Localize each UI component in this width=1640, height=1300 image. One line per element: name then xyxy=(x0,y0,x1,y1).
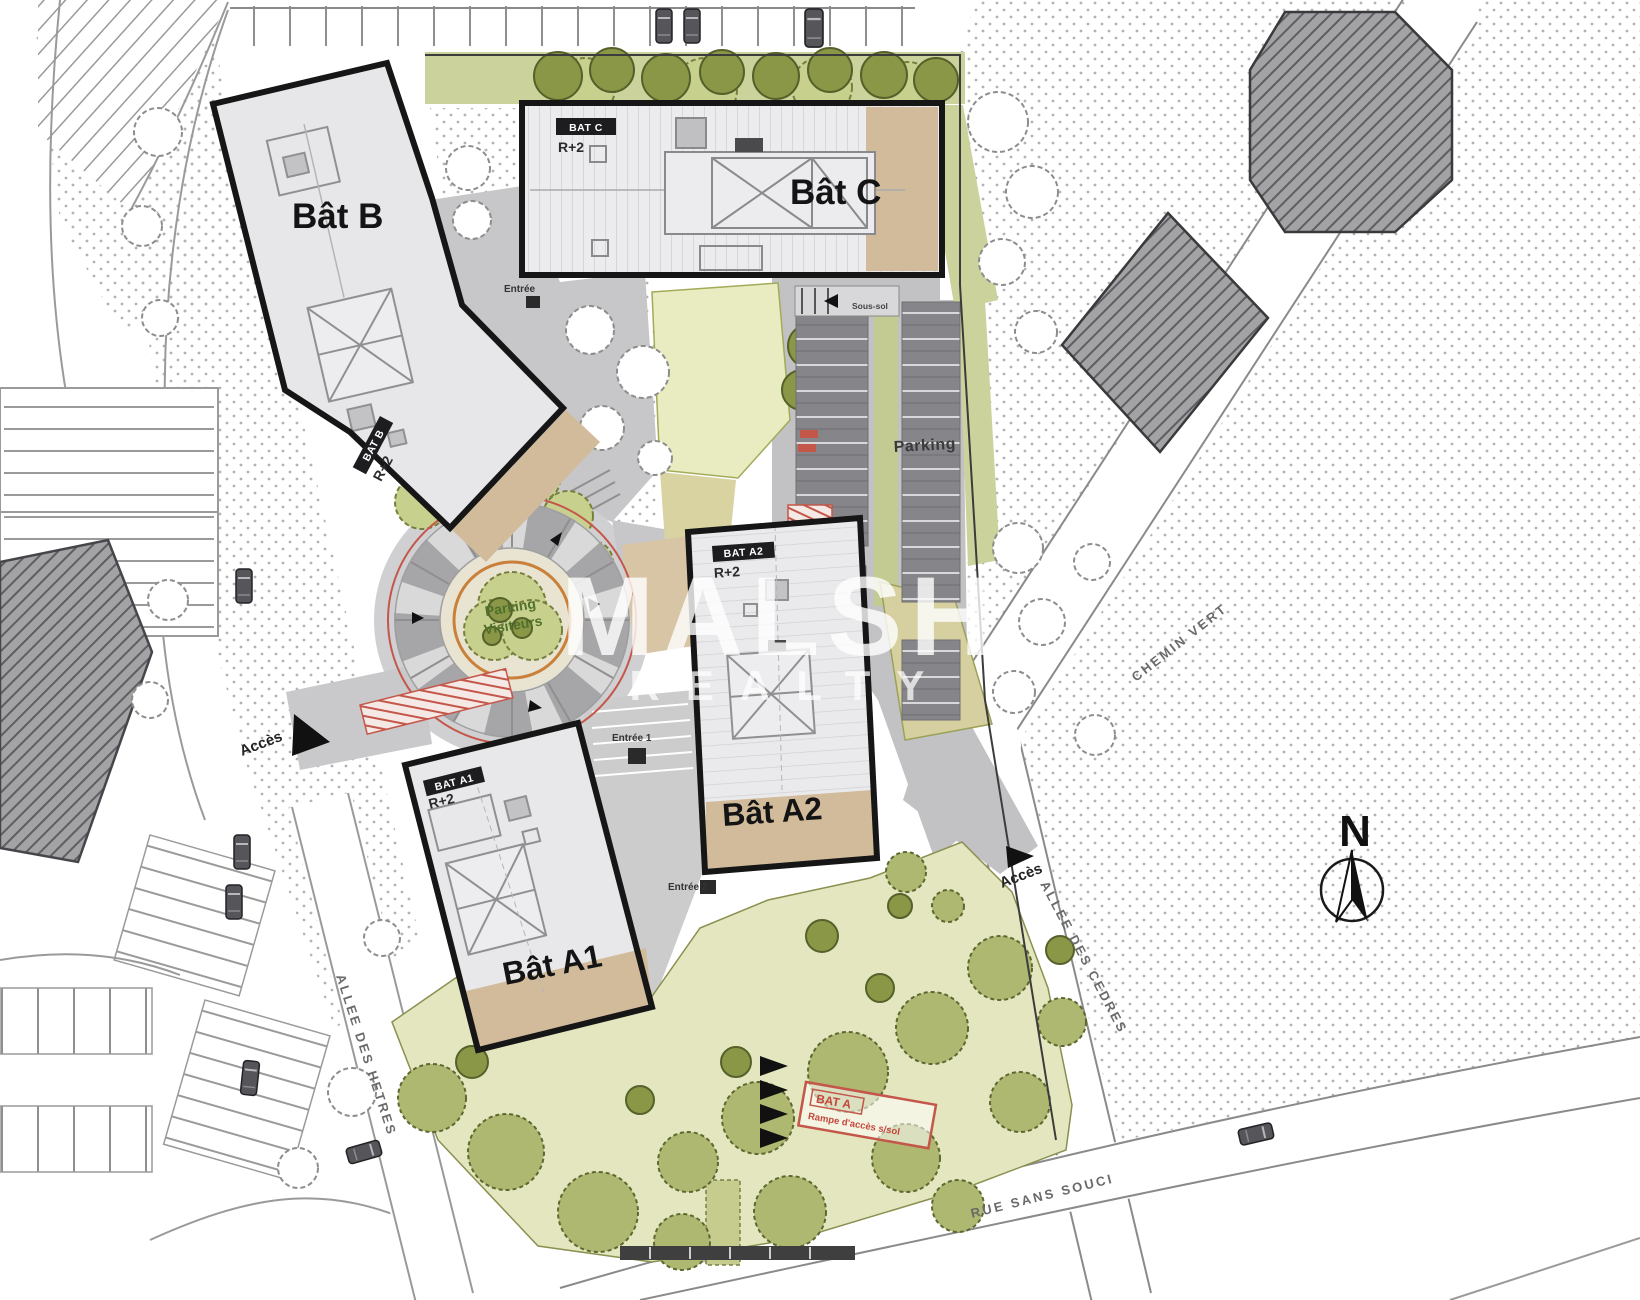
svg-text:BAT C: BAT C xyxy=(569,122,603,134)
existing-building-northeast xyxy=(1250,12,1452,232)
building-label-a2: Bât A2 xyxy=(721,790,823,833)
entree-1-label: Entrée 1 xyxy=(612,733,652,744)
site-plan-canvas: Parking Visiteurs BAT B R+2 Bât B xyxy=(0,0,1640,1300)
building-label-c: Bât C xyxy=(790,173,881,212)
watermark-line1: MALSH xyxy=(561,554,999,679)
parking-label: Parking xyxy=(893,436,956,456)
building-level-c: R+2 xyxy=(558,139,584,155)
sous-sol-label: Sous-sol xyxy=(852,301,888,311)
watermark-line2: REALTY xyxy=(630,662,951,709)
entree-2-label: Entrée 2 xyxy=(668,882,708,893)
site-plan: Parking Visiteurs BAT B R+2 Bât B xyxy=(0,0,1640,1300)
parking-row-north xyxy=(230,6,915,47)
entree-label: Entrée xyxy=(504,284,536,295)
building-bat-c: BAT C R+2 Bât C xyxy=(522,103,942,275)
compass-north-label: N xyxy=(1339,807,1371,856)
building-label-b: Bât B xyxy=(292,197,383,236)
